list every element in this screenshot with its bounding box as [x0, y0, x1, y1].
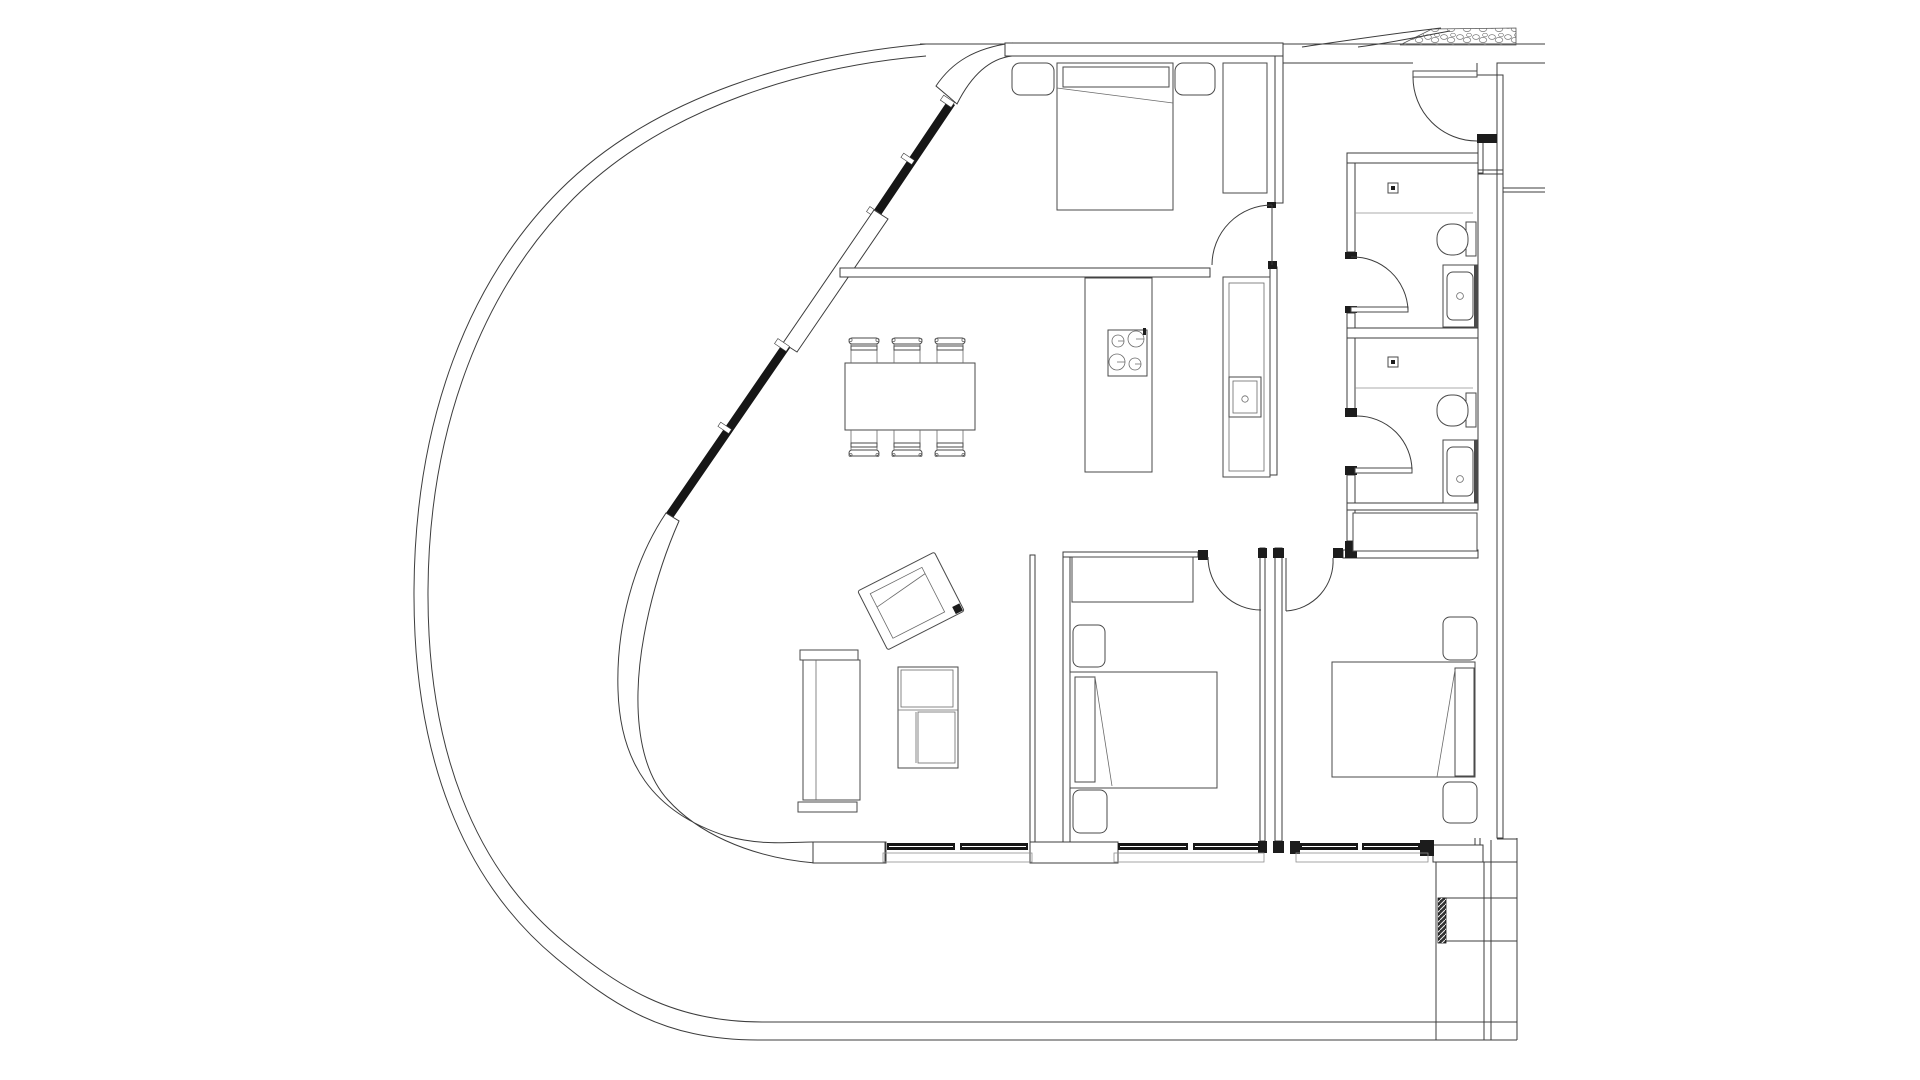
- kitchen-sink: [1229, 377, 1261, 417]
- sofa: [798, 650, 860, 812]
- bedroom-3-nightstand-bottom: [1443, 782, 1477, 823]
- toilet-2: [1437, 393, 1476, 427]
- bedroom-1-bed: [1057, 63, 1173, 210]
- shower-drain-2: [1388, 357, 1398, 367]
- bathroom-2: [1355, 338, 1478, 503]
- bathroom-1-door: [1351, 257, 1408, 312]
- hallway-closet: [1353, 513, 1477, 551]
- bedroom-1-nightstand-left: [1012, 63, 1054, 95]
- bathroom-2-door: [1355, 416, 1412, 473]
- bedroom-2-door: [1208, 557, 1261, 610]
- kitchen-sink-counter: [1223, 277, 1270, 477]
- bedroom-3-nightstand-top: [1443, 617, 1477, 660]
- bedroom-2-nightstand-bottom: [1073, 790, 1107, 833]
- shower-drain-1: [1388, 183, 1398, 193]
- shelf-unit: [898, 667, 958, 768]
- curved-wall-pier-top: [936, 43, 1012, 104]
- bottom-windows: [883, 843, 1428, 862]
- bedroom-2-bed: [1070, 672, 1217, 788]
- vanity-sink-2: [1443, 440, 1478, 503]
- diagonal-window-upper: [867, 95, 955, 219]
- bedroom-1-nightstand-right: [1175, 63, 1215, 95]
- dining-chairs-top: [849, 338, 965, 363]
- toilet-1: [1437, 222, 1476, 256]
- bedroom-1-wardrobe: [1223, 63, 1267, 193]
- bedroom-3-bed: [1332, 662, 1475, 777]
- entry-door: [1413, 71, 1477, 141]
- exterior-steps: [1433, 838, 1517, 1040]
- diagonal-wall-pier: [783, 210, 888, 352]
- diagonal-window-lower: [666, 339, 790, 518]
- armchair: [858, 552, 965, 650]
- bedroom-2-dresser: [1072, 557, 1193, 602]
- bedroom-2-nightstand-top: [1073, 625, 1105, 667]
- cooktop: [1108, 328, 1147, 376]
- dining-set: [845, 338, 975, 457]
- floor-plan-page: [0, 0, 1920, 1080]
- bathroom-1: [1355, 163, 1478, 328]
- floor-plan-drawing: [0, 0, 1920, 1080]
- bedroom-3-door: [1286, 558, 1333, 611]
- bedroom-1-door: [1212, 205, 1272, 265]
- dining-chairs-bottom: [849, 430, 965, 457]
- kitchen-peninsula: [1085, 278, 1152, 472]
- vanity-sink-1: [1443, 265, 1478, 327]
